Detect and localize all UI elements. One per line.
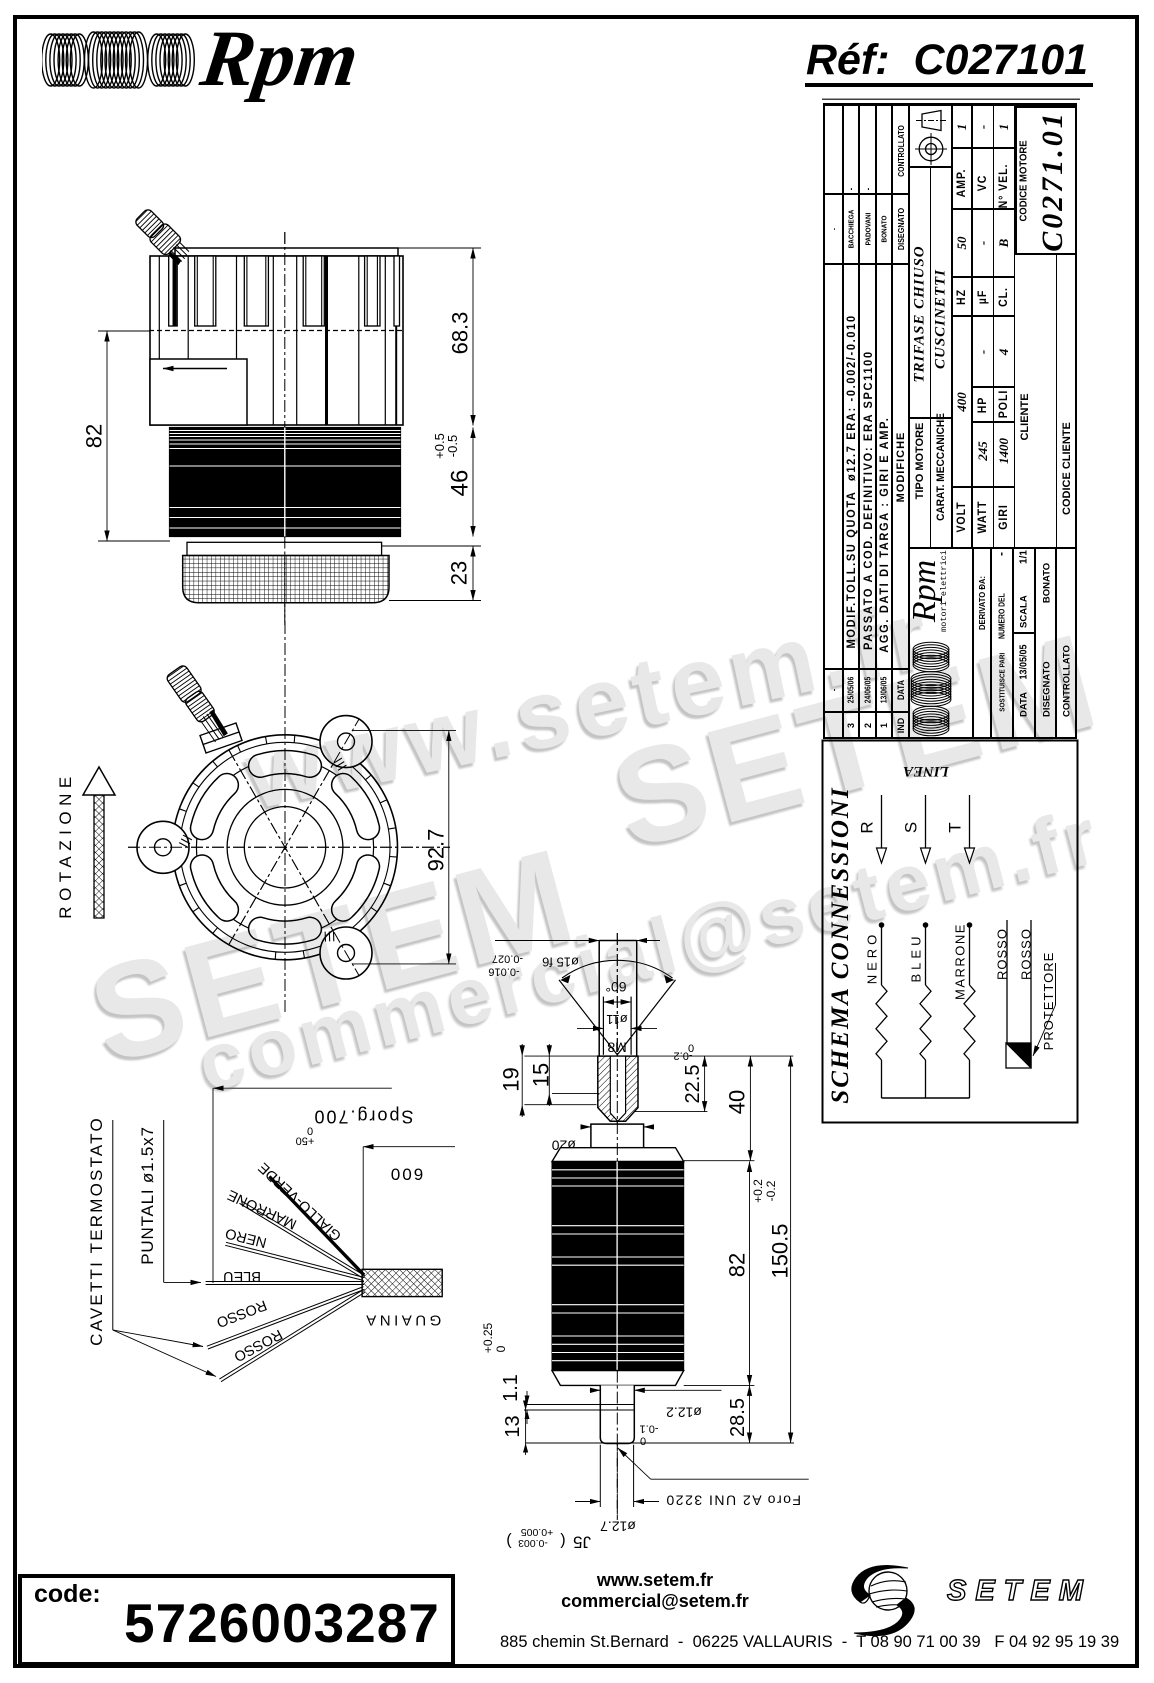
svg-text:-0.003: -0.003 (518, 1537, 548, 1549)
svg-text:150.5: 150.5 (768, 1223, 793, 1278)
svg-text:BLEU: BLEU (223, 1268, 261, 1284)
svg-text:600: 600 (389, 1165, 423, 1184)
svg-text:46: 46 (446, 470, 473, 497)
svg-text:J5: J5 (573, 1532, 591, 1551)
svg-text:19: 19 (499, 1067, 524, 1091)
svg-text:82: 82 (725, 1253, 750, 1277)
svg-text:82: 82 (82, 424, 107, 448)
svg-text:Sporg.700: Sporg.700 (312, 1107, 413, 1127)
svg-text:(: ( (560, 1533, 566, 1550)
svg-text:R: R (857, 821, 876, 833)
svg-text:23: 23 (447, 561, 472, 585)
svg-text:-0.2: -0.2 (764, 1180, 778, 1201)
svg-text:+0.2: +0.2 (751, 1179, 765, 1203)
svg-text:GIALLO-VERDE: GIALLO-VERDE (255, 1159, 345, 1244)
svg-text:PROTETTORE: PROTETTORE (1041, 952, 1056, 1051)
svg-text:GUAINA: GUAINA (363, 1312, 442, 1329)
svg-text:ø12.2: ø12.2 (666, 1404, 702, 1420)
svg-text:1.1: 1.1 (500, 1374, 522, 1402)
svg-text:0: 0 (494, 1345, 508, 1352)
svg-text:+0.005: +0.005 (521, 1526, 554, 1538)
svg-text:CAVETTI TERMOSTATO: CAVETTI TERMOSTATO (87, 1116, 106, 1346)
svg-text:MARRONE: MARRONE (953, 923, 968, 1000)
svg-text:0: 0 (640, 1434, 646, 1446)
svg-text:ø12.7: ø12.7 (600, 1518, 636, 1534)
svg-text:0: 0 (307, 1124, 313, 1136)
svg-text:-0.2: -0.2 (674, 1049, 693, 1061)
svg-text:S: S (901, 822, 920, 833)
svg-text:15: 15 (529, 1063, 554, 1087)
svg-text:ROTAZIONE: ROTAZIONE (56, 771, 75, 918)
svg-text:40: 40 (725, 1090, 750, 1114)
svg-text:28.5: 28.5 (727, 1398, 749, 1437)
svg-text:+0.25: +0.25 (481, 1322, 495, 1353)
svg-text:ROSSO: ROSSO (995, 928, 1010, 980)
svg-text:PUNTALI ø1.5x7: PUNTALI ø1.5x7 (138, 1126, 157, 1264)
svg-text:-0.1: -0.1 (640, 1422, 659, 1434)
svg-text:BLEU: BLEU (909, 933, 924, 983)
svg-text:68.3: 68.3 (448, 312, 473, 355)
svg-text:-0.5: -0.5 (445, 435, 460, 457)
svg-text:Foro A2 UNI 3220: Foro A2 UNI 3220 (665, 1493, 801, 1509)
svg-text:ROSSO: ROSSO (1019, 928, 1034, 980)
svg-text:13: 13 (502, 1415, 524, 1437)
svg-text:22.5: 22.5 (682, 1065, 704, 1104)
svg-text:ROSSO: ROSSO (214, 1296, 269, 1330)
svg-text:): ) (506, 1533, 511, 1550)
